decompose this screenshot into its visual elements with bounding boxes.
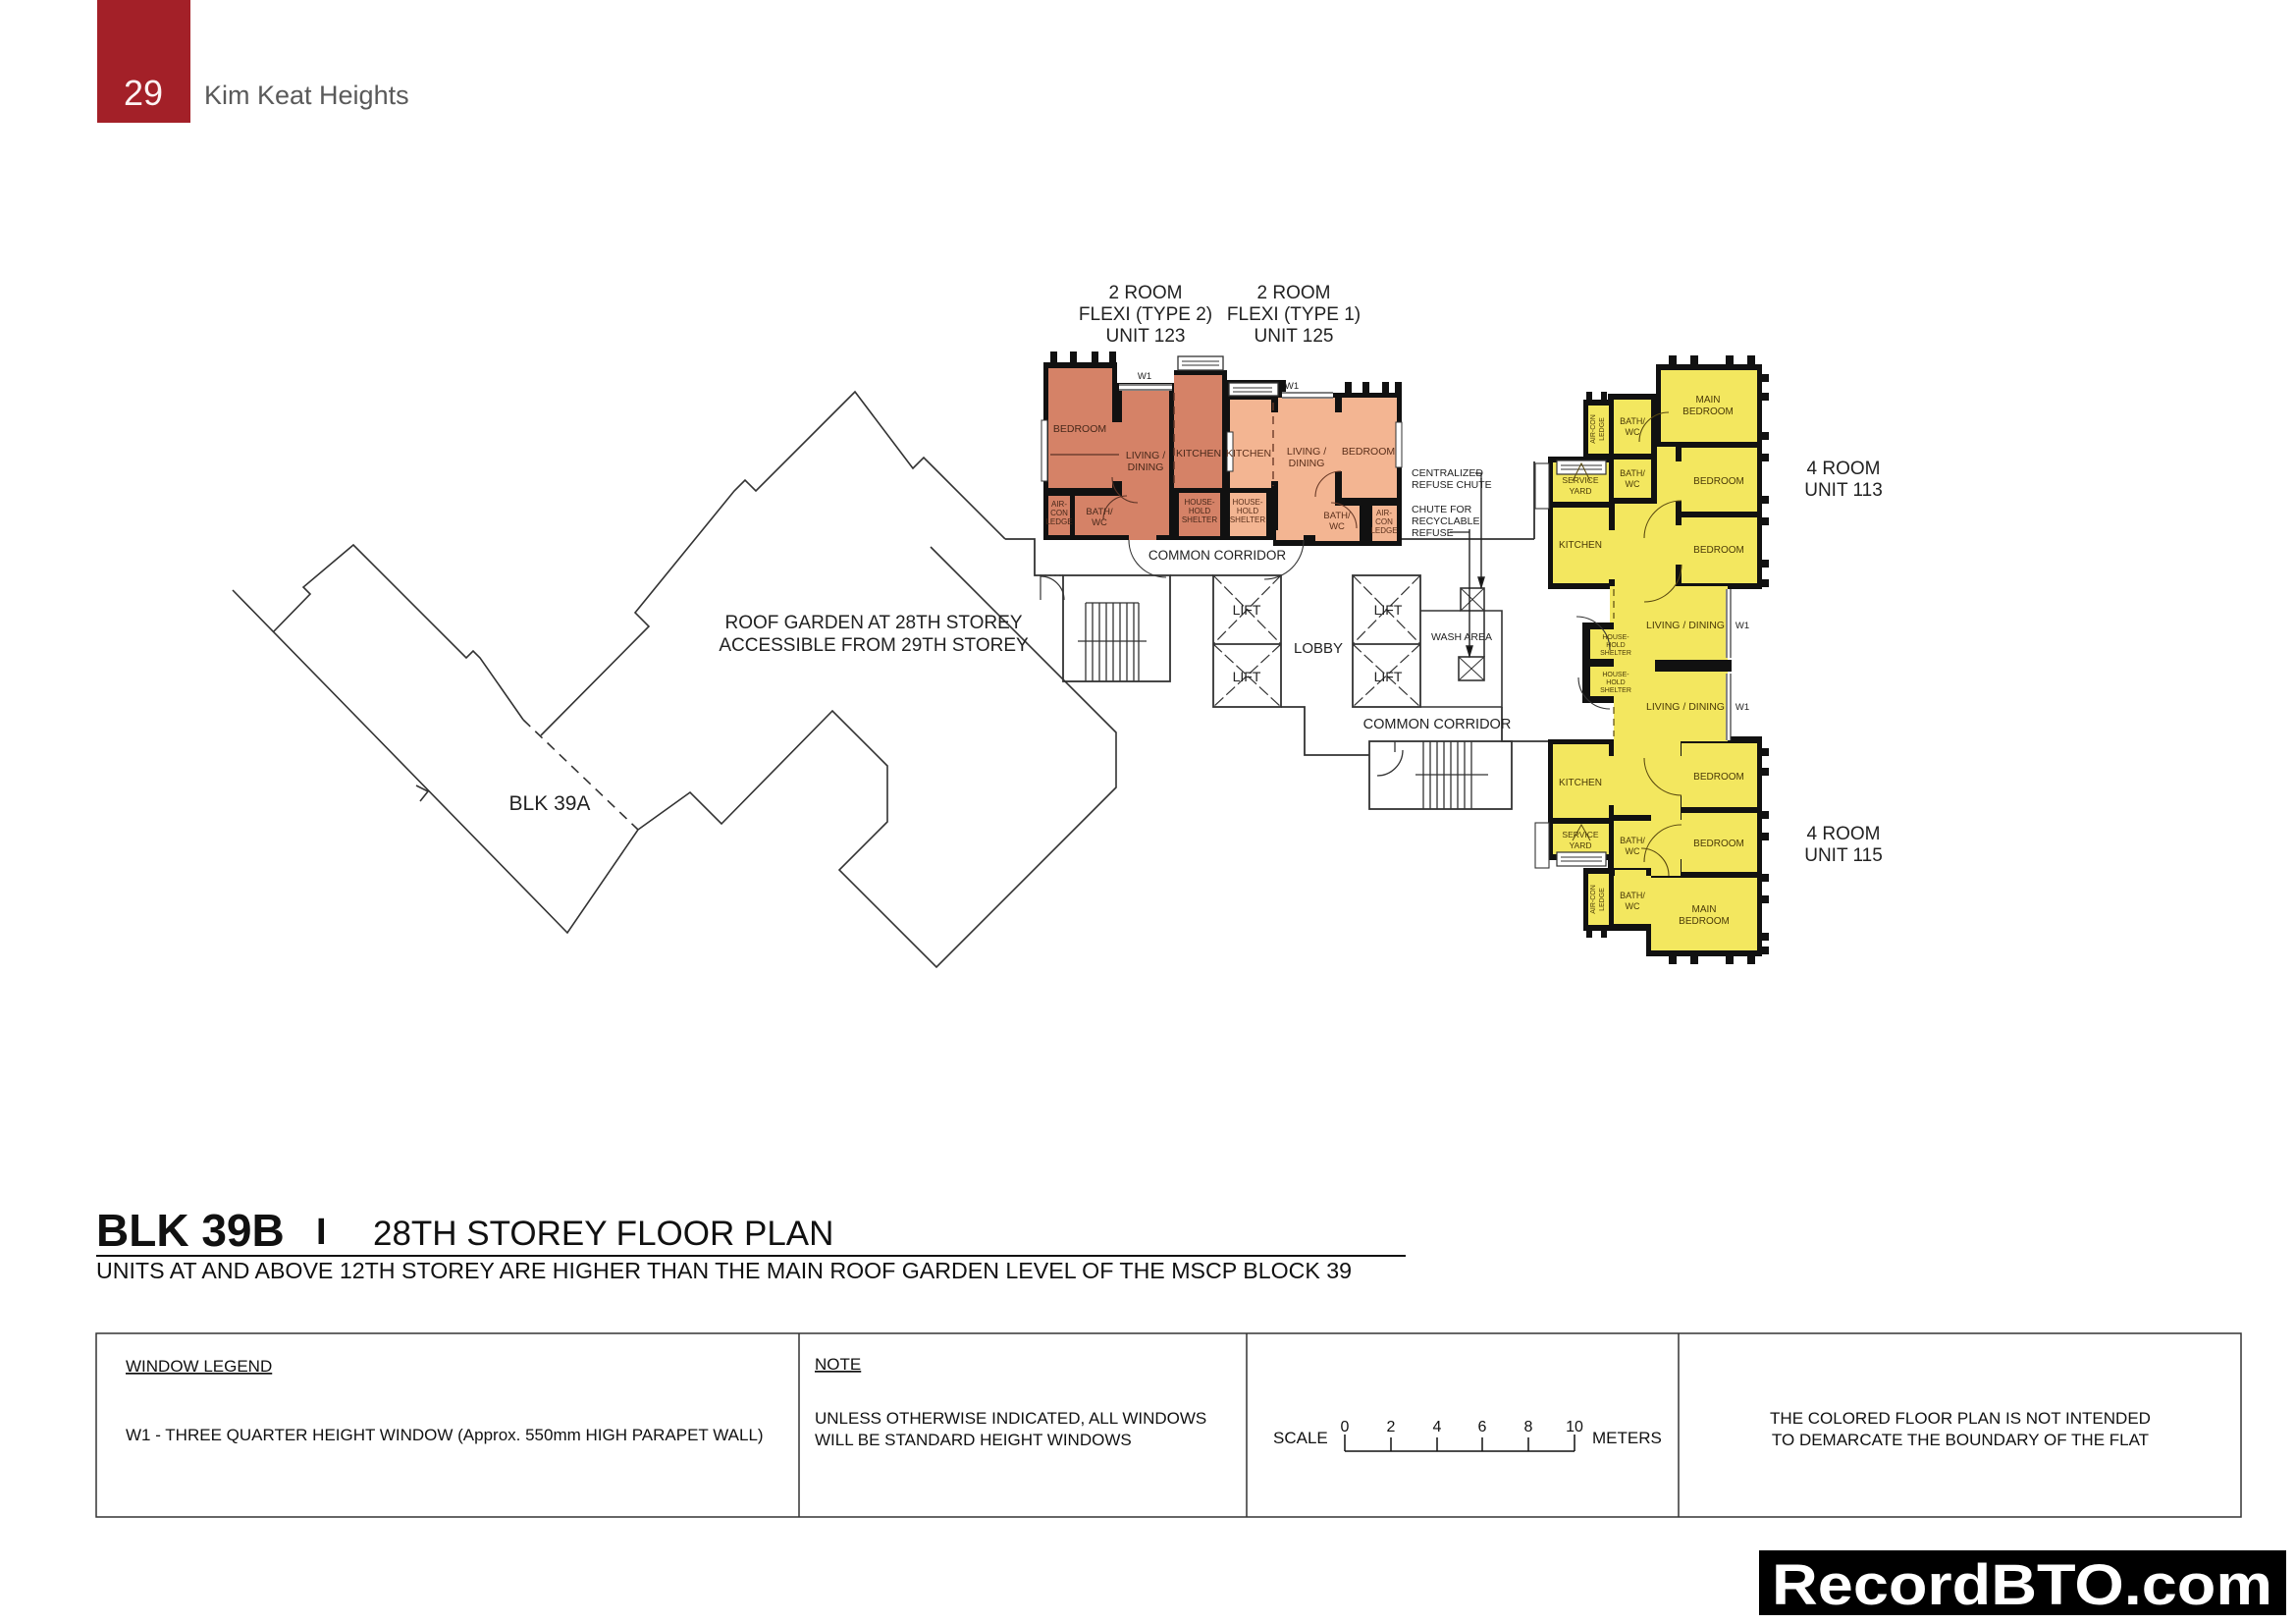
svg-text:LIVING /: LIVING / xyxy=(1287,446,1326,458)
svg-text:2 ROOM: 2 ROOM xyxy=(1109,283,1183,303)
svg-text:AIR-: AIR- xyxy=(1051,500,1067,509)
svg-text:AIR-: AIR- xyxy=(1376,509,1392,517)
svg-text:UNIT 113: UNIT 113 xyxy=(1804,480,1883,501)
svg-text:LIVING / DINING: LIVING / DINING xyxy=(1646,701,1725,713)
svg-text:HOLD: HOLD xyxy=(1606,679,1625,686)
svg-text:SHELTER: SHELTER xyxy=(1600,687,1631,694)
svg-text:I: I xyxy=(316,1212,327,1253)
svg-text:KITCHEN: KITCHEN xyxy=(1559,778,1602,788)
svg-text:LIVING /: LIVING / xyxy=(1126,450,1165,461)
svg-text:NOTE: NOTE xyxy=(815,1355,861,1374)
svg-text:UNIT 115: UNIT 115 xyxy=(1804,845,1883,866)
svg-text:SERVICE: SERVICE xyxy=(1562,830,1598,839)
svg-text:DINING: DINING xyxy=(1289,458,1325,469)
svg-text:ROOF GARDEN AT 28TH STOREY: ROOF GARDEN AT 28TH STOREY xyxy=(724,613,1022,633)
svg-text:2: 2 xyxy=(1387,1419,1396,1435)
svg-text:COMMON CORRIDOR: COMMON CORRIDOR xyxy=(1363,717,1512,732)
svg-text:W1: W1 xyxy=(1285,381,1299,392)
svg-text:REFUSE: REFUSE xyxy=(1412,527,1454,539)
svg-text:LIFT: LIFT xyxy=(1374,602,1403,618)
svg-text:2 ROOM: 2 ROOM xyxy=(1257,283,1331,303)
svg-text:CHUTE FOR: CHUTE FOR xyxy=(1412,504,1472,515)
svg-text:WC: WC xyxy=(1626,427,1640,437)
svg-text:UNIT 123: UNIT 123 xyxy=(1106,326,1186,347)
svg-text:BEDROOM: BEDROOM xyxy=(1693,839,1744,849)
svg-text:REFUSE CHUTE: REFUSE CHUTE xyxy=(1412,479,1492,491)
svg-text:SHELTER: SHELTER xyxy=(1600,650,1631,657)
svg-text:CENTRALIZED: CENTRALIZED xyxy=(1412,467,1483,479)
svg-text:LOBBY: LOBBY xyxy=(1294,640,1343,657)
svg-text:FLEXI (TYPE 1): FLEXI (TYPE 1) xyxy=(1227,304,1361,325)
svg-text:WILL BE STANDARD HEIGHT WINDOW: WILL BE STANDARD HEIGHT WINDOWS xyxy=(815,1431,1132,1449)
svg-text:METERS: METERS xyxy=(1592,1429,1662,1447)
svg-text:BEDROOM: BEDROOM xyxy=(1053,423,1106,435)
svg-text:MAIN: MAIN xyxy=(1696,395,1721,406)
svg-text:BATH/: BATH/ xyxy=(1620,468,1645,478)
svg-text:TO DEMARCATE THE BOUNDARY OF T: TO DEMARCATE THE BOUNDARY OF THE FLAT xyxy=(1772,1431,2149,1449)
svg-text:HOLD: HOLD xyxy=(1189,507,1210,515)
svg-text:SERVICE: SERVICE xyxy=(1562,475,1598,485)
svg-text:LIFT: LIFT xyxy=(1233,602,1261,618)
svg-text:BATH/: BATH/ xyxy=(1086,507,1113,517)
svg-text:BEDROOM: BEDROOM xyxy=(1682,406,1734,417)
svg-text:0: 0 xyxy=(1341,1419,1350,1435)
svg-text:FLEXI (TYPE 2): FLEXI (TYPE 2) xyxy=(1079,304,1212,325)
svg-text:DINING: DINING xyxy=(1128,461,1164,473)
svg-text:HOLD: HOLD xyxy=(1237,507,1258,515)
svg-text:KITCHEN: KITCHEN xyxy=(1226,448,1271,460)
svg-text:LIVING / DINING: LIVING / DINING xyxy=(1646,620,1725,631)
svg-text:RecordBTO.com: RecordBTO.com xyxy=(1772,1553,2272,1617)
svg-text:W1: W1 xyxy=(1138,371,1151,382)
svg-text:8: 8 xyxy=(1524,1419,1533,1435)
svg-text:LEDGE: LEDGE xyxy=(1045,517,1072,526)
svg-text:W1: W1 xyxy=(1735,702,1749,713)
svg-text:28TH STOREY FLOOR PLAN: 28TH STOREY FLOOR PLAN xyxy=(373,1215,833,1253)
svg-text:CON: CON xyxy=(1375,517,1393,526)
svg-text:UNIT 125: UNIT 125 xyxy=(1255,326,1334,347)
svg-text:THE COLORED FLOOR PLAN IS NOT: THE COLORED FLOOR PLAN IS NOT INTENDED xyxy=(1770,1409,2151,1428)
svg-text:4: 4 xyxy=(1433,1419,1442,1435)
svg-text:SHELTER: SHELTER xyxy=(1230,515,1266,524)
svg-text:WC: WC xyxy=(1092,517,1107,528)
svg-text:BLK 39B: BLK 39B xyxy=(96,1205,285,1256)
svg-text:KITCHEN: KITCHEN xyxy=(1559,540,1602,551)
svg-text:4 ROOM: 4 ROOM xyxy=(1807,459,1881,479)
svg-text:HOUSE-: HOUSE- xyxy=(1184,498,1214,507)
svg-text:LEDGE: LEDGE xyxy=(1599,888,1606,911)
svg-text:UNITS AT AND ABOVE 12TH STOREY: UNITS AT AND ABOVE 12TH STOREY ARE HIGHE… xyxy=(96,1258,1352,1283)
svg-text:LEDGE: LEDGE xyxy=(1599,417,1606,441)
svg-text:CON: CON xyxy=(1050,509,1068,517)
svg-text:BATH/: BATH/ xyxy=(1620,891,1645,900)
svg-text:HOUSE-: HOUSE- xyxy=(1602,634,1629,641)
svg-text:YARD: YARD xyxy=(1570,486,1592,496)
svg-text:WASH AREA: WASH AREA xyxy=(1431,631,1492,643)
svg-text:WC: WC xyxy=(1626,846,1640,856)
svg-text:UNLESS OTHERWISE INDICATED, AL: UNLESS OTHERWISE INDICATED, ALL WINDOWS xyxy=(815,1409,1206,1428)
svg-text:HOUSE-: HOUSE- xyxy=(1232,498,1262,507)
svg-text:BEDROOM: BEDROOM xyxy=(1342,446,1395,458)
svg-text:YARD: YARD xyxy=(1570,840,1592,850)
svg-text:HOLD: HOLD xyxy=(1606,642,1625,649)
svg-text:4 ROOM: 4 ROOM xyxy=(1807,824,1881,844)
svg-text:29: 29 xyxy=(124,73,163,113)
svg-text:BEDROOM: BEDROOM xyxy=(1693,476,1744,487)
svg-text:SCALE: SCALE xyxy=(1273,1429,1328,1447)
svg-text:AIR-CON: AIR-CON xyxy=(1590,414,1597,444)
svg-text:BLK 39A: BLK 39A xyxy=(509,792,591,815)
svg-text:LEDGE: LEDGE xyxy=(1370,526,1397,535)
svg-text:WC: WC xyxy=(1626,901,1640,911)
svg-text:WINDOW LEGEND: WINDOW LEGEND xyxy=(126,1357,272,1376)
svg-text:LIFT: LIFT xyxy=(1233,669,1261,684)
svg-text:BEDROOM: BEDROOM xyxy=(1693,545,1744,556)
svg-text:COMMON CORRIDOR: COMMON CORRIDOR xyxy=(1148,548,1286,563)
svg-text:BATH/: BATH/ xyxy=(1323,511,1351,521)
svg-text:W1 - THREE QUARTER HEIGHT WIND: W1 - THREE QUARTER HEIGHT WINDOW (Approx… xyxy=(126,1426,764,1444)
svg-text:HOUSE-: HOUSE- xyxy=(1602,672,1629,678)
svg-text:RECYCLABLE: RECYCLABLE xyxy=(1412,515,1479,527)
svg-text:MAIN: MAIN xyxy=(1692,904,1717,915)
svg-text:KITCHEN: KITCHEN xyxy=(1176,448,1221,460)
svg-text:10: 10 xyxy=(1566,1419,1583,1435)
svg-text:BEDROOM: BEDROOM xyxy=(1679,916,1730,927)
svg-text:Kim Keat Heights: Kim Keat Heights xyxy=(204,81,409,110)
svg-text:W1: W1 xyxy=(1735,621,1749,631)
svg-text:BEDROOM: BEDROOM xyxy=(1693,772,1744,783)
svg-text:WC: WC xyxy=(1626,479,1640,489)
svg-text:AIR-CON: AIR-CON xyxy=(1590,885,1597,914)
svg-text:6: 6 xyxy=(1478,1419,1487,1435)
svg-text:BATH/: BATH/ xyxy=(1620,836,1645,845)
svg-text:LIFT: LIFT xyxy=(1374,669,1403,684)
svg-text:WC: WC xyxy=(1329,521,1345,532)
svg-text:BATH/: BATH/ xyxy=(1620,416,1645,426)
svg-text:SHELTER: SHELTER xyxy=(1182,515,1218,524)
svg-text:ACCESSIBLE FROM 29TH STOREY: ACCESSIBLE FROM 29TH STOREY xyxy=(719,635,1029,656)
